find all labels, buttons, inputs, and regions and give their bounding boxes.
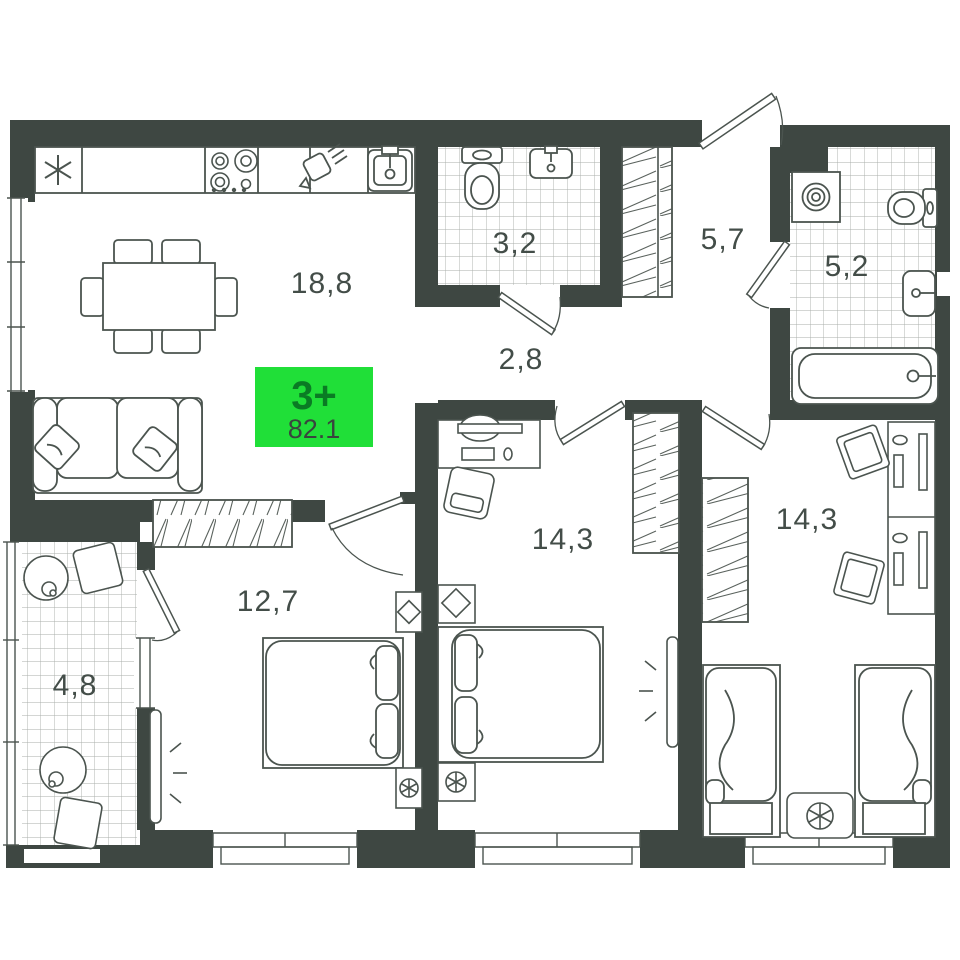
kitchen-sink-icon — [368, 146, 412, 191]
desk-unit — [888, 422, 935, 614]
label-corridor: 2,8 — [499, 343, 544, 376]
dressing-table — [438, 415, 540, 468]
entry-door — [699, 93, 783, 148]
sink-small-icon — [530, 146, 572, 178]
wardrobe-bedroom-middle — [633, 413, 679, 553]
children-room-door — [702, 406, 769, 449]
label-bedroom-left: 12,7 — [237, 585, 299, 618]
label-bathroom-small: 3,2 — [493, 227, 538, 260]
area-badge: 3+ 82.1 — [255, 367, 373, 447]
floor-plan-svg: 18,8 3,2 5,7 5,2 2,8 14,3 14,3 12,7 4,8 … — [0, 0, 960, 960]
desk-chair — [836, 424, 891, 480]
dining-table — [81, 240, 237, 353]
desk-chair — [833, 551, 885, 604]
bathroom-small-door — [498, 293, 560, 335]
label-bedroom-middle: 14,3 — [532, 523, 594, 556]
sofa — [33, 398, 202, 493]
tv-bedroom-left — [150, 710, 187, 823]
label-bathroom-large: 5,2 — [825, 250, 870, 283]
living-room-window — [6, 198, 28, 392]
wardrobe-bedroom-left — [153, 500, 292, 547]
balcony-inner-window — [134, 638, 158, 708]
toilet-large-icon — [888, 189, 937, 227]
label-balcony: 4,8 — [53, 669, 98, 702]
sink-large-icon — [903, 271, 935, 316]
washing-machine-icon — [792, 172, 840, 222]
badge-rooms-label: 3+ — [291, 374, 337, 418]
nightstand-fan — [396, 768, 422, 808]
nightstand-fan — [787, 793, 853, 838]
wardrobe-children-room — [702, 478, 748, 622]
bed-single-left — [703, 665, 780, 837]
wardrobe-hallway — [622, 147, 672, 297]
label-children-room: 14,3 — [776, 503, 838, 536]
balcony-door — [143, 569, 179, 641]
chair-dressing — [443, 466, 496, 520]
label-kitchen-living: 18,8 — [291, 267, 353, 300]
nightstand-diamond — [396, 592, 422, 632]
bathtub-icon — [792, 348, 938, 404]
bed-single-right — [855, 665, 935, 837]
bed-double-middle — [438, 627, 603, 762]
floor-plan: 18,8 3,2 5,7 5,2 2,8 14,3 14,3 12,7 4,8 … — [0, 0, 960, 960]
bedroom-middle-window — [475, 826, 640, 868]
nightstand-fan — [438, 763, 475, 801]
bedroom-middle-door — [555, 401, 625, 444]
bathroom-large-door — [747, 241, 790, 308]
label-hallway-entry: 5,7 — [701, 223, 746, 256]
bedroom-left-door — [329, 496, 404, 575]
badge-total-area: 82.1 — [288, 414, 341, 444]
bed-double-left — [263, 638, 403, 768]
bathroom-small-tiles — [438, 147, 600, 285]
wall-service-notch — [937, 272, 952, 296]
toilet-small-icon — [462, 147, 502, 209]
tv-bedroom-middle — [639, 637, 678, 747]
nightstand-diamond — [438, 585, 475, 623]
bedroom-left-window — [213, 826, 357, 868]
